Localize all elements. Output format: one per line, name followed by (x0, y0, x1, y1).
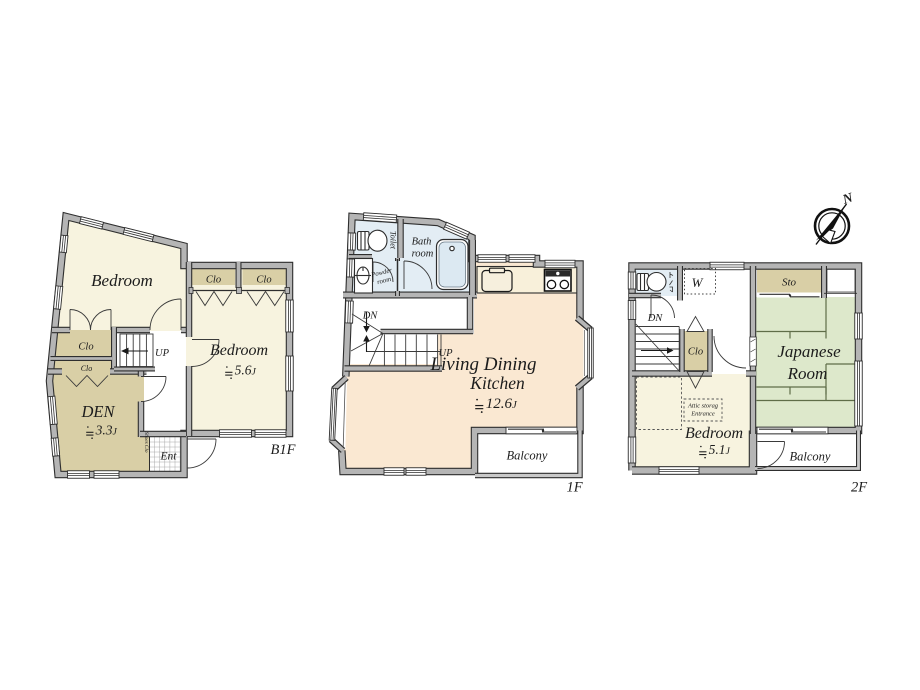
svg-text:UP: UP (155, 348, 170, 359)
svg-text:1F: 1F (566, 480, 582, 496)
svg-text:Sto: Sto (782, 277, 797, 289)
svg-text:Bedroom: Bedroom (91, 271, 153, 290)
svg-text:Clo: Clo (81, 364, 93, 373)
svg-text:2F: 2F (851, 480, 867, 496)
svg-text:Clo: Clo (688, 347, 703, 358)
svg-text:12.6J: 12.6J (486, 396, 518, 412)
svg-text:DEN: DEN (81, 402, 116, 421)
svg-text:Japanese: Japanese (777, 342, 841, 361)
svg-text:Room: Room (787, 364, 828, 383)
svg-text:W: W (692, 275, 704, 290)
svg-text:DN: DN (362, 311, 379, 322)
svg-text:room: room (412, 249, 434, 260)
svg-text:Bedroom: Bedroom (210, 342, 268, 359)
svg-text:Toilet: Toilet (389, 231, 398, 250)
svg-text:Living Dining: Living Dining (429, 354, 536, 375)
svg-text:B1F: B1F (271, 442, 296, 458)
svg-text:Clo: Clo (78, 342, 93, 353)
svg-text:Clo: Clo (206, 275, 221, 286)
svg-text:Bath: Bath (412, 237, 432, 248)
svg-text:Bedroom: Bedroom (685, 425, 743, 442)
svg-text:Ent: Ent (160, 451, 178, 463)
svg-text:Balcony: Balcony (790, 450, 831, 464)
svg-text:Shoes Clo: Shoes Clo (143, 432, 149, 453)
svg-text:DN: DN (647, 313, 664, 324)
svg-text:Attic storag: Attic storag (687, 403, 719, 410)
svg-text:Balcony: Balcony (507, 449, 548, 463)
svg-text:Entrance: Entrance (690, 411, 715, 418)
svg-text:Kitchen: Kitchen (469, 373, 525, 393)
svg-text:Clo: Clo (256, 275, 271, 286)
